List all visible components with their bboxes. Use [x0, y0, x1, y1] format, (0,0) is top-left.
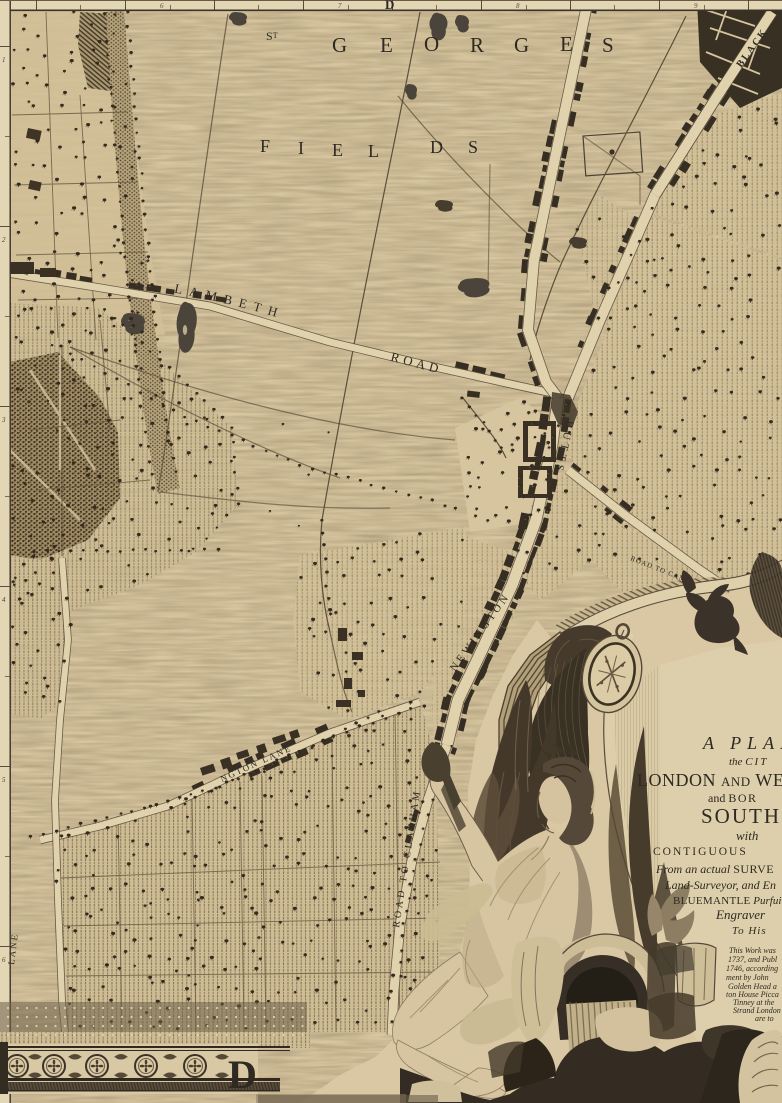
- svg-text:From an actual SURVE: From an actual SURVE: [655, 862, 774, 876]
- svg-text:O: O: [424, 32, 439, 56]
- svg-text:4: 4: [2, 596, 6, 604]
- svg-text:S: S: [468, 137, 478, 157]
- svg-text:S: S: [602, 33, 614, 57]
- svg-text:1746, according: 1746, according: [726, 964, 778, 973]
- svg-text:8: 8: [516, 2, 520, 10]
- svg-text:ment by John: ment by John: [726, 973, 769, 982]
- svg-text:Engraver: Engraver: [715, 907, 766, 922]
- svg-text:CONTIGUOUS: CONTIGUOUS: [653, 846, 748, 858]
- svg-text:BLUEMANTLE Purfuiv: BLUEMANTLE Purfuiv: [673, 895, 782, 907]
- svg-text:7: 7: [338, 2, 342, 10]
- svg-text:SOUTH: SOUTH: [701, 804, 781, 828]
- svg-text:D: D: [385, 0, 394, 12]
- svg-text:1: 1: [2, 56, 6, 64]
- svg-text:A PLAN: A PLAN: [702, 733, 782, 753]
- svg-text:with: with: [736, 828, 758, 843]
- svg-text:E: E: [560, 32, 573, 56]
- svg-text:are to: are to: [755, 1014, 774, 1023]
- svg-text:3: 3: [1, 416, 6, 424]
- svg-text:E: E: [380, 33, 393, 57]
- svg-text:Land-Surveyor, and En: Land-Surveyor, and En: [664, 878, 776, 892]
- svg-text:and BOR: and BOR: [708, 791, 758, 805]
- svg-text:G: G: [514, 33, 529, 57]
- svg-text:5: 5: [2, 776, 6, 784]
- svg-text:6: 6: [160, 2, 164, 10]
- svg-text:L: L: [368, 141, 379, 161]
- svg-text:F: F: [260, 136, 270, 156]
- svg-text:2: 2: [2, 236, 6, 244]
- svg-text:9: 9: [694, 2, 698, 10]
- svg-text:R: R: [470, 33, 484, 57]
- svg-text:LONDON AND WE: LONDON AND WE: [637, 770, 782, 790]
- svg-text:D: D: [430, 137, 443, 157]
- svg-text:I: I: [298, 138, 304, 158]
- svg-text:D: D: [228, 1052, 257, 1097]
- svg-text:To His: To His: [732, 925, 767, 937]
- svg-text:1737, and Publ: 1737, and Publ: [728, 955, 778, 964]
- svg-text:E: E: [332, 140, 343, 160]
- svg-text:G: G: [332, 33, 347, 57]
- svg-text:the CIT: the CIT: [729, 756, 768, 768]
- svg-text:This Work was: This Work was: [729, 946, 776, 955]
